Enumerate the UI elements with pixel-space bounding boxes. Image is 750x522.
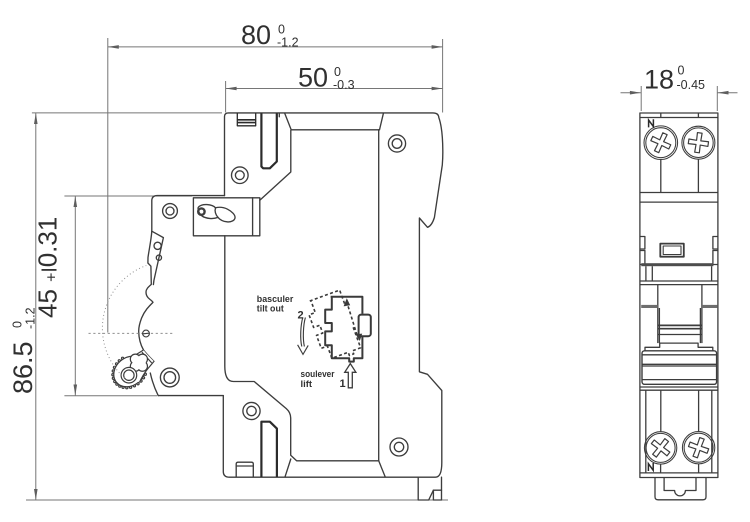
svg-text:80: 80 [241,20,271,50]
svg-text:1: 1 [340,378,346,390]
svg-text:0: 0 [334,65,341,79]
svg-text:18: 18 [644,64,674,94]
svg-text:-0.3: -0.3 [333,78,355,92]
svg-text:lift: lift [301,379,313,390]
svg-text:0: 0 [10,321,24,328]
svg-text:45 +ǀ0.31: 45 +ǀ0.31 [33,217,63,318]
svg-text:50: 50 [298,63,328,93]
svg-text:0: 0 [678,64,685,78]
svg-text:86.5: 86.5 [8,341,38,394]
svg-text:tilt out: tilt out [257,304,285,315]
svg-text:2: 2 [298,310,304,322]
svg-text:-0.45: -0.45 [677,78,706,92]
svg-text:0: 0 [278,23,285,37]
svg-text:-1.2: -1.2 [277,36,299,50]
